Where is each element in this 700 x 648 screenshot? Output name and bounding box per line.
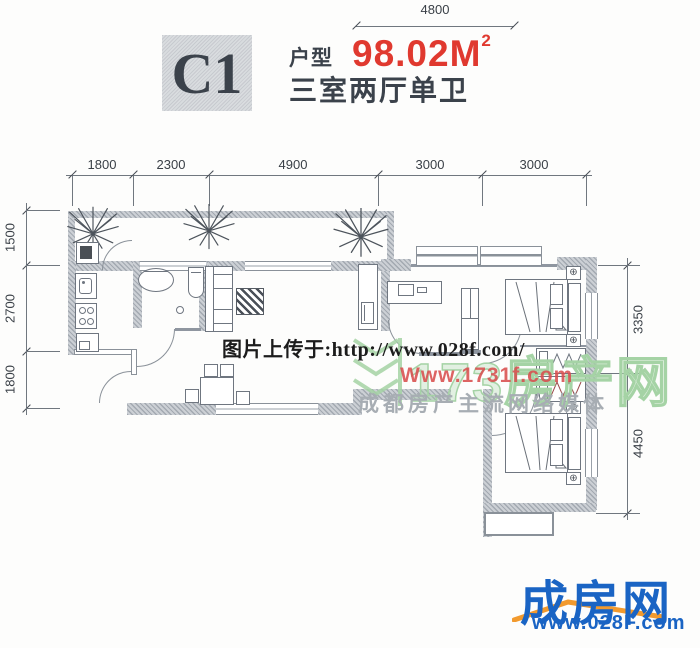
counter-inset bbox=[79, 341, 90, 350]
door-arc bbox=[99, 371, 131, 403]
sofa-cushion-line bbox=[214, 288, 232, 289]
dimension-label: 4900 bbox=[268, 157, 318, 172]
shelf-line bbox=[470, 289, 471, 318]
balcony-cabinet-symbol bbox=[76, 242, 99, 264]
dimension-extension bbox=[586, 176, 587, 206]
watermark-site-url: Www.1731f.com bbox=[400, 364, 573, 388]
watermark-upload-notice: 图片上传于:http://www.028f.com/ bbox=[222, 333, 525, 362]
sofa-armrest bbox=[213, 323, 233, 332]
dimension-label: 2700 bbox=[3, 289, 18, 329]
stove-burner bbox=[87, 307, 94, 314]
dimension-label: 1800 bbox=[77, 157, 127, 172]
dimension-extension bbox=[133, 176, 134, 206]
dimension-label: 1500 bbox=[3, 218, 18, 258]
stove-burner bbox=[79, 318, 86, 325]
bathtub-symbol bbox=[188, 267, 204, 298]
window-segment bbox=[585, 293, 598, 339]
sink-drain bbox=[82, 281, 85, 284]
stove-burner bbox=[87, 318, 94, 325]
chair-symbol bbox=[236, 391, 250, 405]
stove-symbol bbox=[75, 303, 97, 329]
unit-code: C1 bbox=[172, 40, 243, 107]
floorplan-scan: C1 户型 98.02M2 三室两厅单卫 4800 1800 2300 4900… bbox=[0, 0, 700, 648]
dimension-label: 2300 bbox=[146, 157, 196, 172]
dimension-extension bbox=[26, 351, 60, 352]
bay-window bbox=[480, 246, 542, 266]
dimension-extension bbox=[596, 513, 640, 514]
shelf-line bbox=[462, 318, 478, 319]
dimension-line bbox=[356, 26, 514, 27]
dimension-extension bbox=[26, 210, 60, 211]
floor-drain-symbol bbox=[176, 306, 184, 314]
pillow-symbol bbox=[550, 308, 563, 329]
sofa-armrest bbox=[213, 266, 233, 275]
area-superscript: 2 bbox=[481, 31, 491, 50]
headboard-symbol bbox=[568, 417, 581, 470]
bedside-lamp-symbol: ⊕ bbox=[566, 472, 581, 485]
dimension-extension bbox=[598, 265, 640, 266]
headboard-symbol bbox=[568, 283, 581, 332]
dimension-line bbox=[26, 203, 27, 415]
brand-logo-url: www.028F.com bbox=[532, 612, 686, 635]
bathtub-line bbox=[191, 272, 201, 273]
sofa-cushion-line bbox=[214, 309, 232, 310]
window-segment bbox=[245, 261, 331, 271]
dimension-label: 3000 bbox=[509, 157, 559, 172]
chair-symbol bbox=[185, 389, 199, 403]
bed-symbol bbox=[505, 413, 568, 473]
bed-symbol bbox=[505, 279, 568, 335]
desk-symbol bbox=[387, 281, 442, 304]
dimension-extension bbox=[26, 408, 60, 409]
dimension-line bbox=[66, 175, 592, 176]
bay-window bbox=[416, 246, 478, 266]
balcony-rail bbox=[484, 512, 554, 536]
pillow-symbol bbox=[550, 284, 563, 305]
dimension-label: 3350 bbox=[631, 300, 646, 340]
wall-segment bbox=[133, 261, 142, 328]
computer-mouse-symbol bbox=[417, 287, 427, 293]
plant-symbol bbox=[328, 208, 394, 262]
dining-table-symbol bbox=[200, 377, 234, 405]
dimension-label: 3000 bbox=[405, 157, 455, 172]
washbasin-edge bbox=[144, 271, 168, 272]
stove-burner bbox=[79, 307, 86, 314]
chair-symbol bbox=[204, 364, 218, 377]
cabinet-fill bbox=[80, 246, 92, 259]
dimension-label: 1800 bbox=[3, 360, 18, 400]
tv-symbol bbox=[361, 302, 374, 324]
wall-segment bbox=[483, 503, 596, 512]
coffee-table-symbol bbox=[236, 288, 264, 315]
dimension-label: 4450 bbox=[631, 424, 646, 464]
type-label: 户型 bbox=[289, 42, 333, 72]
dimension-extension bbox=[26, 265, 60, 266]
kitchen-counter-symbol bbox=[76, 333, 99, 352]
tv-screen-line bbox=[364, 305, 365, 321]
sink-basin bbox=[79, 278, 92, 294]
chair-symbol bbox=[220, 364, 234, 377]
dimension-extension bbox=[72, 176, 73, 206]
computer-monitor-symbol bbox=[398, 284, 414, 296]
window-segment bbox=[585, 429, 598, 477]
dimension-extension bbox=[378, 176, 379, 206]
dimension-extension bbox=[209, 176, 210, 206]
plant-symbol bbox=[176, 204, 242, 254]
dimension-extension bbox=[482, 176, 483, 206]
sofa-symbol bbox=[205, 266, 233, 332]
door-arc bbox=[137, 329, 175, 367]
sofa-back-line bbox=[213, 267, 214, 331]
dimension-label-top-overall: 4800 bbox=[410, 2, 460, 17]
bedside-lamp-symbol: ⊕ bbox=[566, 266, 581, 280]
pillow-symbol bbox=[550, 419, 563, 441]
unit-code-box: C1 bbox=[162, 35, 252, 111]
watermark-media-slogan: 成都房产主流网络媒体 bbox=[358, 388, 608, 418]
pillow-symbol bbox=[550, 444, 563, 466]
kitchen-sink-symbol bbox=[75, 273, 97, 299]
layout-description: 三室两厅单卫 bbox=[289, 69, 469, 109]
wall-segment bbox=[175, 328, 201, 331]
